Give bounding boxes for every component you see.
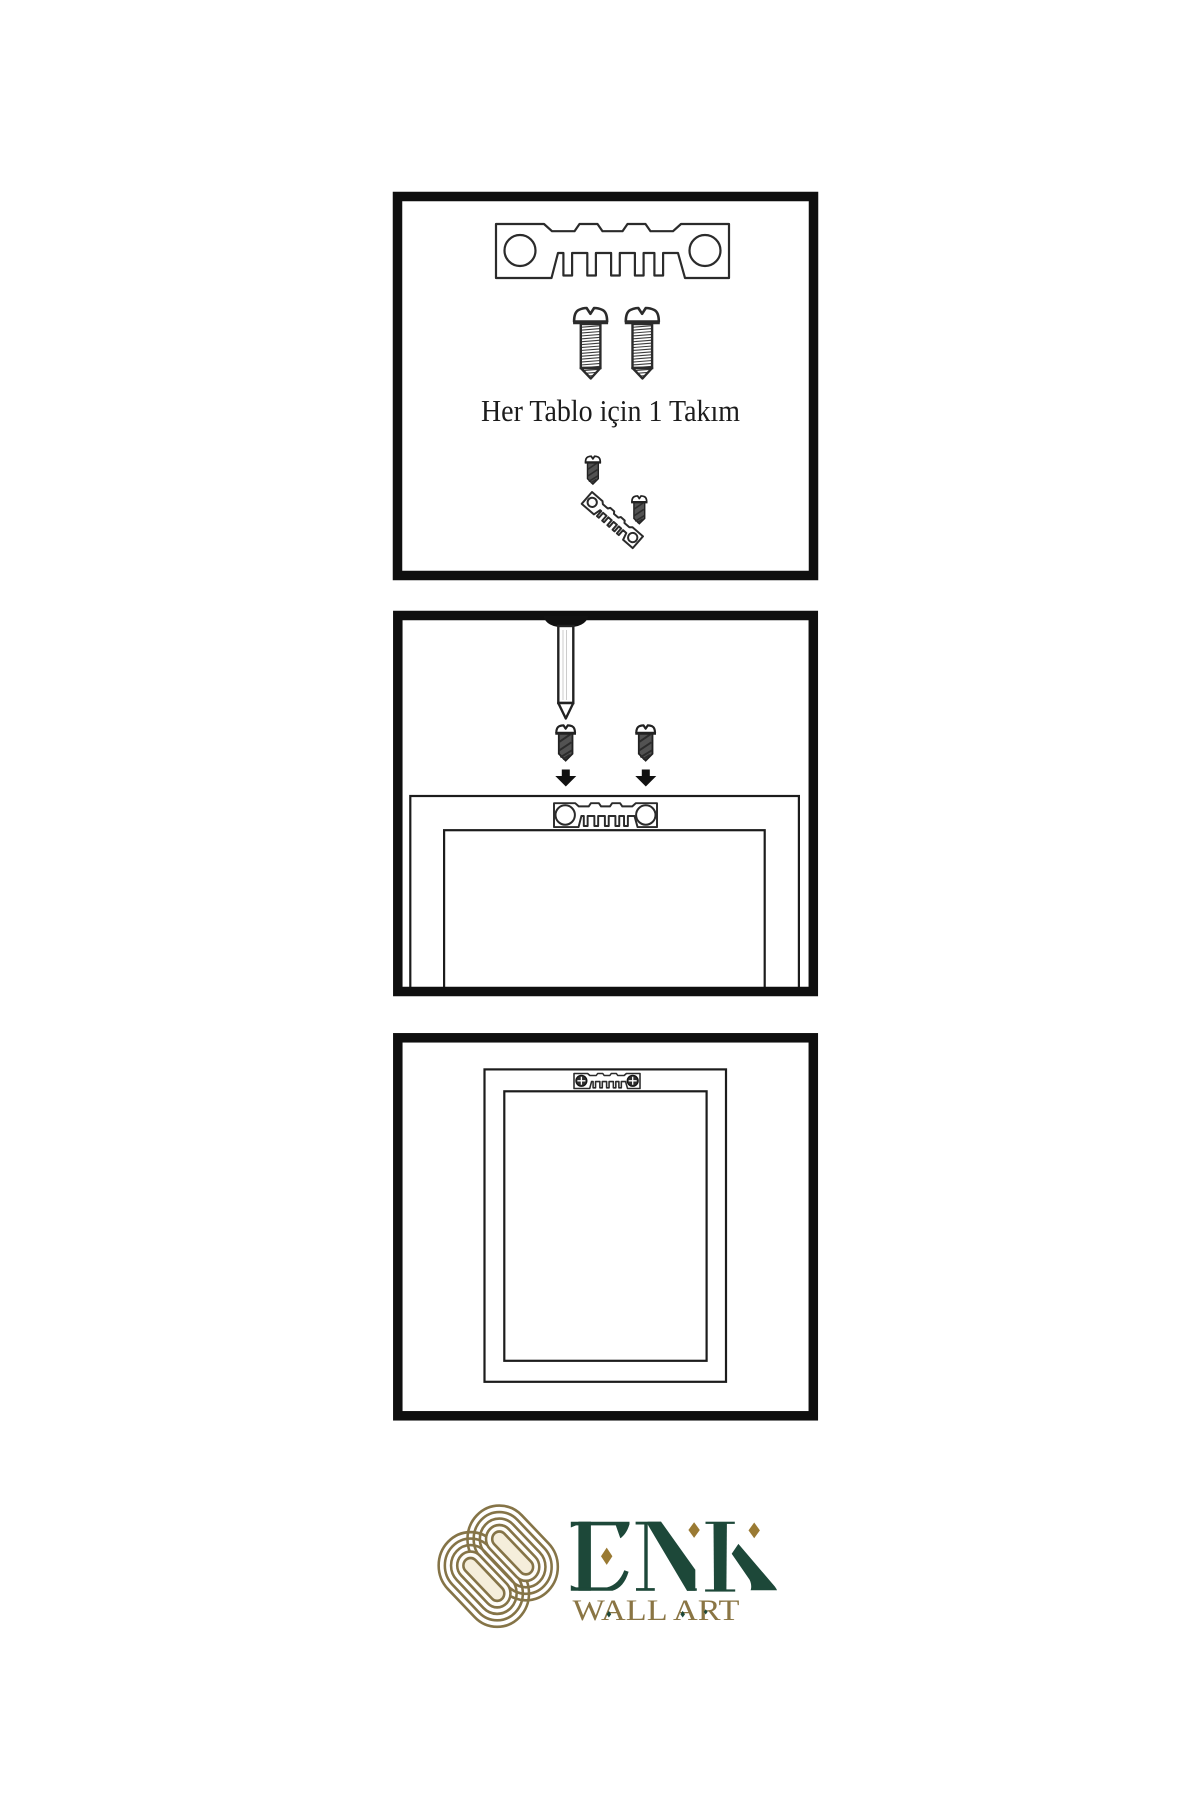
svg-text:WALL ART: WALL ART [573,1595,740,1627]
svg-text:Her Tablo için 1 Takım: Her Tablo için 1 Takım [481,393,740,428]
